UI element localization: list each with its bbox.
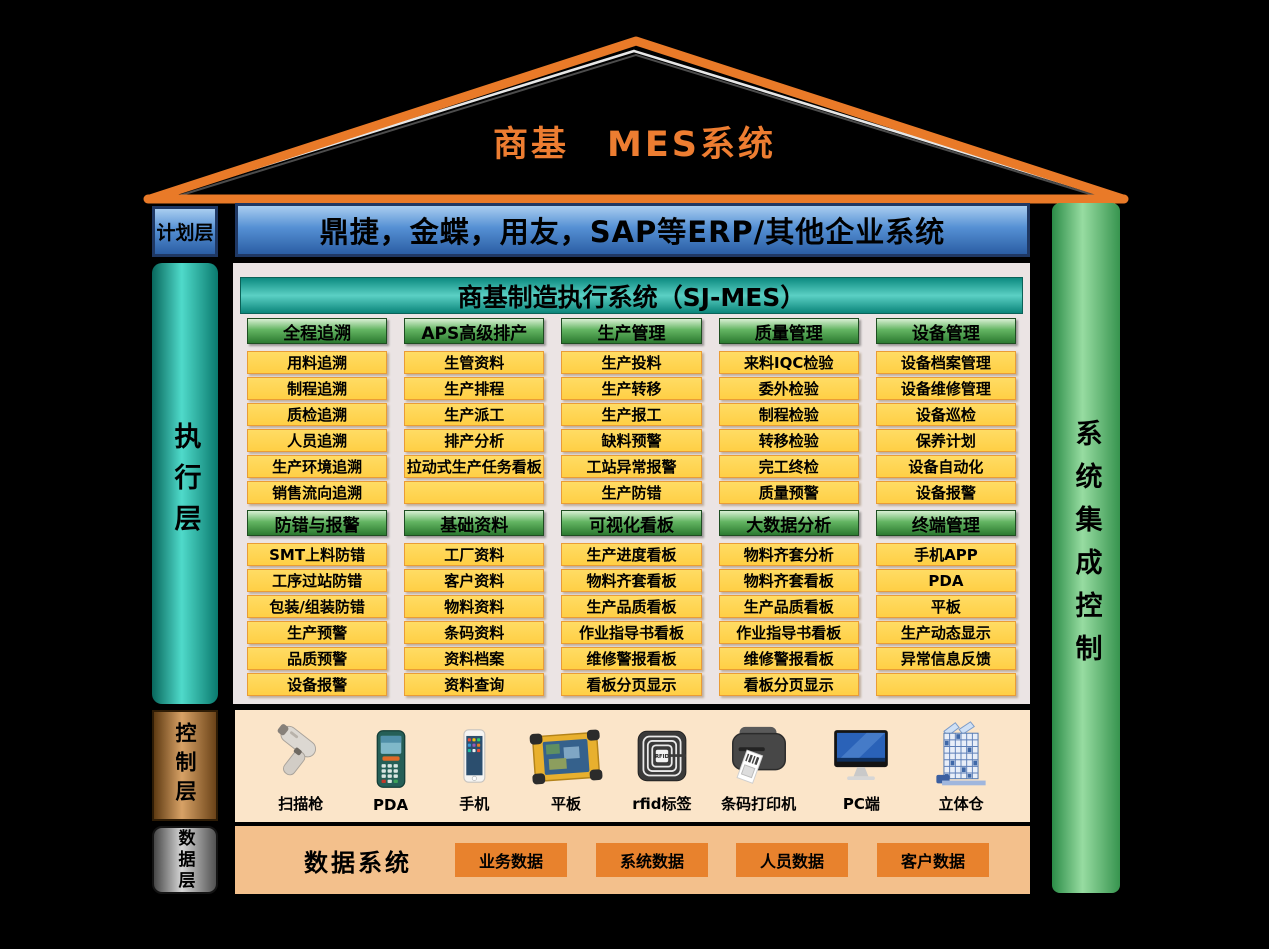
module-item: 保养计划 — [876, 429, 1016, 452]
module-item: PDA — [876, 569, 1016, 592]
module-item: 生产环境追溯 — [247, 455, 387, 478]
module-column: 全程追溯用料追溯制程追溯质检追溯人员追溯生产环境追溯销售流向追溯 — [247, 318, 387, 507]
device-label: rfid标签 — [632, 793, 691, 814]
control-devices-strip: 扫描枪 PDA — [235, 710, 1030, 822]
module-item — [404, 481, 544, 504]
module-item: SMT上料防错 — [247, 543, 387, 566]
module-item: 设备报警 — [247, 673, 387, 696]
module-item: 转移检验 — [719, 429, 859, 452]
module-item: 设备档案管理 — [876, 351, 1016, 374]
module-column: 质量管理来料IQC检验委外检验制程检验转移检验完工终检质量预警 — [719, 318, 859, 507]
module-header: 基础资料 — [404, 510, 544, 536]
data-system-label: 数据系统 — [293, 826, 423, 894]
data-strip: 数据系统 业务数据 系统数据 人员数据 客户数据 — [235, 826, 1030, 894]
rfid-tag-icon: RFID — [631, 721, 693, 791]
module-item: 质量预警 — [719, 481, 859, 504]
device-label: 扫描枪 — [278, 793, 323, 814]
integration-bar: 系统集成控制 — [1052, 203, 1120, 893]
module-item: 平板 — [876, 595, 1016, 618]
execution-panel: 商基制造执行系统（SJ-MES） 全程追溯用料追溯制程追溯质检追溯人员追溯生产环… — [233, 263, 1030, 704]
svg-text:RFID: RFID — [655, 754, 670, 760]
module-item: 生产进度看板 — [561, 543, 701, 566]
layer-label-planning: 计划层 — [152, 206, 218, 257]
module-item: 物料齐套看板 — [561, 569, 701, 592]
module-column: 生产管理生产投料生产转移生产报工缺料预警工站异常报警生产防错 — [561, 318, 701, 507]
warehouse-icon — [925, 719, 997, 791]
module-item: 销售流向追溯 — [247, 481, 387, 504]
module-item: 物料资料 — [404, 595, 544, 618]
module-item: 生产防错 — [561, 481, 701, 504]
device-warehouse: 立体仓 — [925, 719, 997, 814]
device-phone: 手机 — [447, 721, 501, 814]
module-item: 手机APP — [876, 543, 1016, 566]
layer-label-data-text: 数据层 — [173, 829, 198, 892]
phone-icon — [447, 721, 501, 791]
module-item: 作业指导书看板 — [561, 621, 701, 644]
module-header: 大数据分析 — [719, 510, 859, 536]
device-scanner: 扫描枪 — [268, 721, 334, 814]
device-label: 条码打印机 — [721, 793, 796, 814]
module-item: 生产排程 — [404, 377, 544, 400]
pda-icon — [361, 724, 421, 794]
mes-architecture-diagram: 商基 MES系统 计划层 鼎捷，金蝶，用友，SAP等ERP/其他企业系统 执行层… — [0, 0, 1269, 949]
module-item: 工站异常报警 — [561, 455, 701, 478]
module-item: 物料齐套看板 — [719, 569, 859, 592]
module-item: 生产派工 — [404, 403, 544, 426]
data-chip-personnel: 人员数据 — [736, 843, 848, 877]
layer-label-control: 控制层 — [152, 710, 218, 821]
device-pc: PC端 — [824, 721, 898, 814]
module-item: 排产分析 — [404, 429, 544, 452]
integration-bar-text: 系统集成控制 — [1067, 419, 1106, 677]
module-item: 品质预警 — [247, 647, 387, 670]
module-item: 看板分页显示 — [561, 673, 701, 696]
module-item: 生产动态显示 — [876, 621, 1016, 644]
module-column: 设备管理设备档案管理设备维修管理设备巡检保养计划设备自动化设备报警 — [876, 318, 1016, 507]
module-item: 工厂资料 — [404, 543, 544, 566]
module-item: 条码资料 — [404, 621, 544, 644]
device-tablet: 平板 — [528, 721, 604, 814]
module-item: 人员追溯 — [247, 429, 387, 452]
module-item: 完工终检 — [719, 455, 859, 478]
module-header: 质量管理 — [719, 318, 859, 344]
module-item: 设备巡检 — [876, 403, 1016, 426]
device-rfid-tag: RFID rfid标签 — [631, 721, 693, 814]
module-item: 包装/组装防错 — [247, 595, 387, 618]
module-item: 看板分页显示 — [719, 673, 859, 696]
module-item — [876, 673, 1016, 696]
layer-label-execution-text: 执行层 — [166, 422, 205, 545]
module-column: APS高级排产生管资料生产排程生产派工排产分析拉动式生产任务看板 — [404, 318, 544, 507]
module-item: 来料IQC检验 — [719, 351, 859, 374]
device-pda: PDA — [361, 724, 421, 814]
device-label: 手机 — [459, 793, 489, 814]
module-item: 设备报警 — [876, 481, 1016, 504]
module-item: 资料查询 — [404, 673, 544, 696]
module-header: 终端管理 — [876, 510, 1016, 536]
device-label: PDA — [373, 796, 408, 814]
module-item: 生管资料 — [404, 351, 544, 374]
device-label-printer: 条码打印机 — [720, 721, 798, 814]
module-item: 缺料预警 — [561, 429, 701, 452]
device-label: PC端 — [843, 793, 880, 814]
tablet-icon — [528, 721, 604, 791]
module-item: 用料追溯 — [247, 351, 387, 374]
module-section: 防错与报警SMT上料防错工序过站防错包装/组装防错生产预警品质预警设备报警基础资… — [247, 510, 1016, 699]
module-item: 生产报工 — [561, 403, 701, 426]
label-printer-icon — [720, 721, 798, 791]
module-item: 物料齐套分析 — [719, 543, 859, 566]
module-item: 生产预警 — [247, 621, 387, 644]
data-chip-customer: 客户数据 — [877, 843, 989, 877]
module-item: 异常信息反馈 — [876, 647, 1016, 670]
layer-label-execution: 执行层 — [152, 263, 218, 704]
diagram-title: 商基 MES系统 — [0, 116, 1269, 167]
module-header: 可视化看板 — [561, 510, 701, 536]
module-column: 终端管理手机APPPDA平板生产动态显示异常信息反馈 — [876, 510, 1016, 699]
erp-systems-bar: 鼎捷，金蝶，用友，SAP等ERP/其他企业系统 — [235, 203, 1030, 257]
module-item: 委外检验 — [719, 377, 859, 400]
module-item: 设备自动化 — [876, 455, 1016, 478]
device-label: 平板 — [551, 793, 581, 814]
module-header: 防错与报警 — [247, 510, 387, 536]
module-column: 可视化看板生产进度看板物料齐套看板生产品质看板作业指导书看板维修警报看板看板分页… — [561, 510, 701, 699]
module-header: 设备管理 — [876, 318, 1016, 344]
module-column: 基础资料工厂资料客户资料物料资料条码资料资料档案资料查询 — [404, 510, 544, 699]
module-item: 拉动式生产任务看板 — [404, 455, 544, 478]
module-column: 大数据分析物料齐套分析物料齐套看板生产品质看板作业指导书看板维修警报看板看板分页… — [719, 510, 859, 699]
layer-label-control-text: 控制层 — [170, 722, 200, 809]
module-column: 防错与报警SMT上料防错工序过站防错包装/组装防错生产预警品质预警设备报警 — [247, 510, 387, 699]
device-label: 立体仓 — [939, 793, 984, 814]
module-item: 资料档案 — [404, 647, 544, 670]
module-item: 维修警报看板 — [561, 647, 701, 670]
module-item: 生产转移 — [561, 377, 701, 400]
data-chip-system: 系统数据 — [596, 843, 708, 877]
module-header: 生产管理 — [561, 318, 701, 344]
sjmes-title-bar: 商基制造执行系统（SJ-MES） — [240, 277, 1023, 314]
module-section: 全程追溯用料追溯制程追溯质检追溯人员追溯生产环境追溯销售流向追溯APS高级排产生… — [247, 318, 1016, 507]
module-item: 质检追溯 — [247, 403, 387, 426]
barcode-scanner-icon — [268, 721, 334, 791]
module-item: 生产品质看板 — [561, 595, 701, 618]
module-item: 生产品质看板 — [719, 595, 859, 618]
data-chip-business: 业务数据 — [455, 843, 567, 877]
layer-label-data: 数据层 — [152, 826, 218, 894]
module-item: 制程检验 — [719, 403, 859, 426]
module-item: 维修警报看板 — [719, 647, 859, 670]
module-item: 工序过站防错 — [247, 569, 387, 592]
module-item: 制程追溯 — [247, 377, 387, 400]
module-item: 作业指导书看板 — [719, 621, 859, 644]
module-item: 客户资料 — [404, 569, 544, 592]
roof-outline — [0, 0, 1269, 215]
module-header: 全程追溯 — [247, 318, 387, 344]
module-item: 设备维修管理 — [876, 377, 1016, 400]
module-item: 生产投料 — [561, 351, 701, 374]
module-header: APS高级排产 — [404, 318, 544, 344]
pc-monitor-icon — [824, 721, 898, 791]
